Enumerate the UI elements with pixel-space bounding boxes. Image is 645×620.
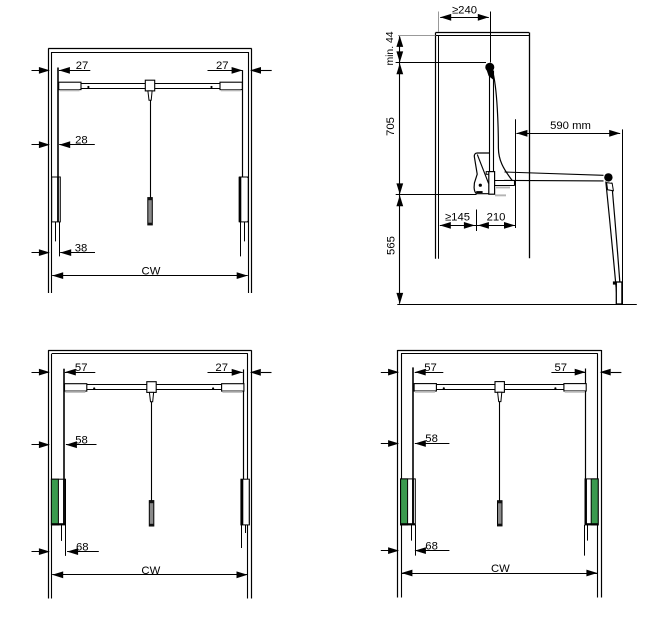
svg-text:57: 57 [555, 362, 568, 374]
svg-text:CW: CW [141, 565, 160, 577]
svg-text:≥145: ≥145 [445, 212, 470, 224]
svg-text:27: 27 [216, 60, 229, 72]
svg-text:210: 210 [487, 212, 506, 224]
svg-text:27: 27 [215, 362, 228, 374]
svg-text:≥240: ≥240 [452, 4, 477, 16]
svg-text:CW: CW [491, 563, 510, 575]
svg-text:58: 58 [75, 434, 88, 446]
svg-text:38: 38 [75, 242, 88, 254]
svg-text:27: 27 [76, 60, 89, 72]
svg-text:590 mm: 590 mm [550, 120, 591, 132]
svg-text:57: 57 [75, 362, 88, 374]
svg-text:68: 68 [425, 540, 438, 552]
svg-text:705: 705 [385, 117, 397, 136]
svg-text:CW: CW [142, 266, 161, 278]
svg-text:565: 565 [385, 236, 397, 255]
svg-text:57: 57 [424, 362, 437, 374]
svg-text:68: 68 [76, 541, 89, 553]
svg-text:min. 44: min. 44 [385, 31, 396, 65]
svg-text:58: 58 [425, 433, 438, 445]
svg-text:28: 28 [75, 134, 88, 146]
